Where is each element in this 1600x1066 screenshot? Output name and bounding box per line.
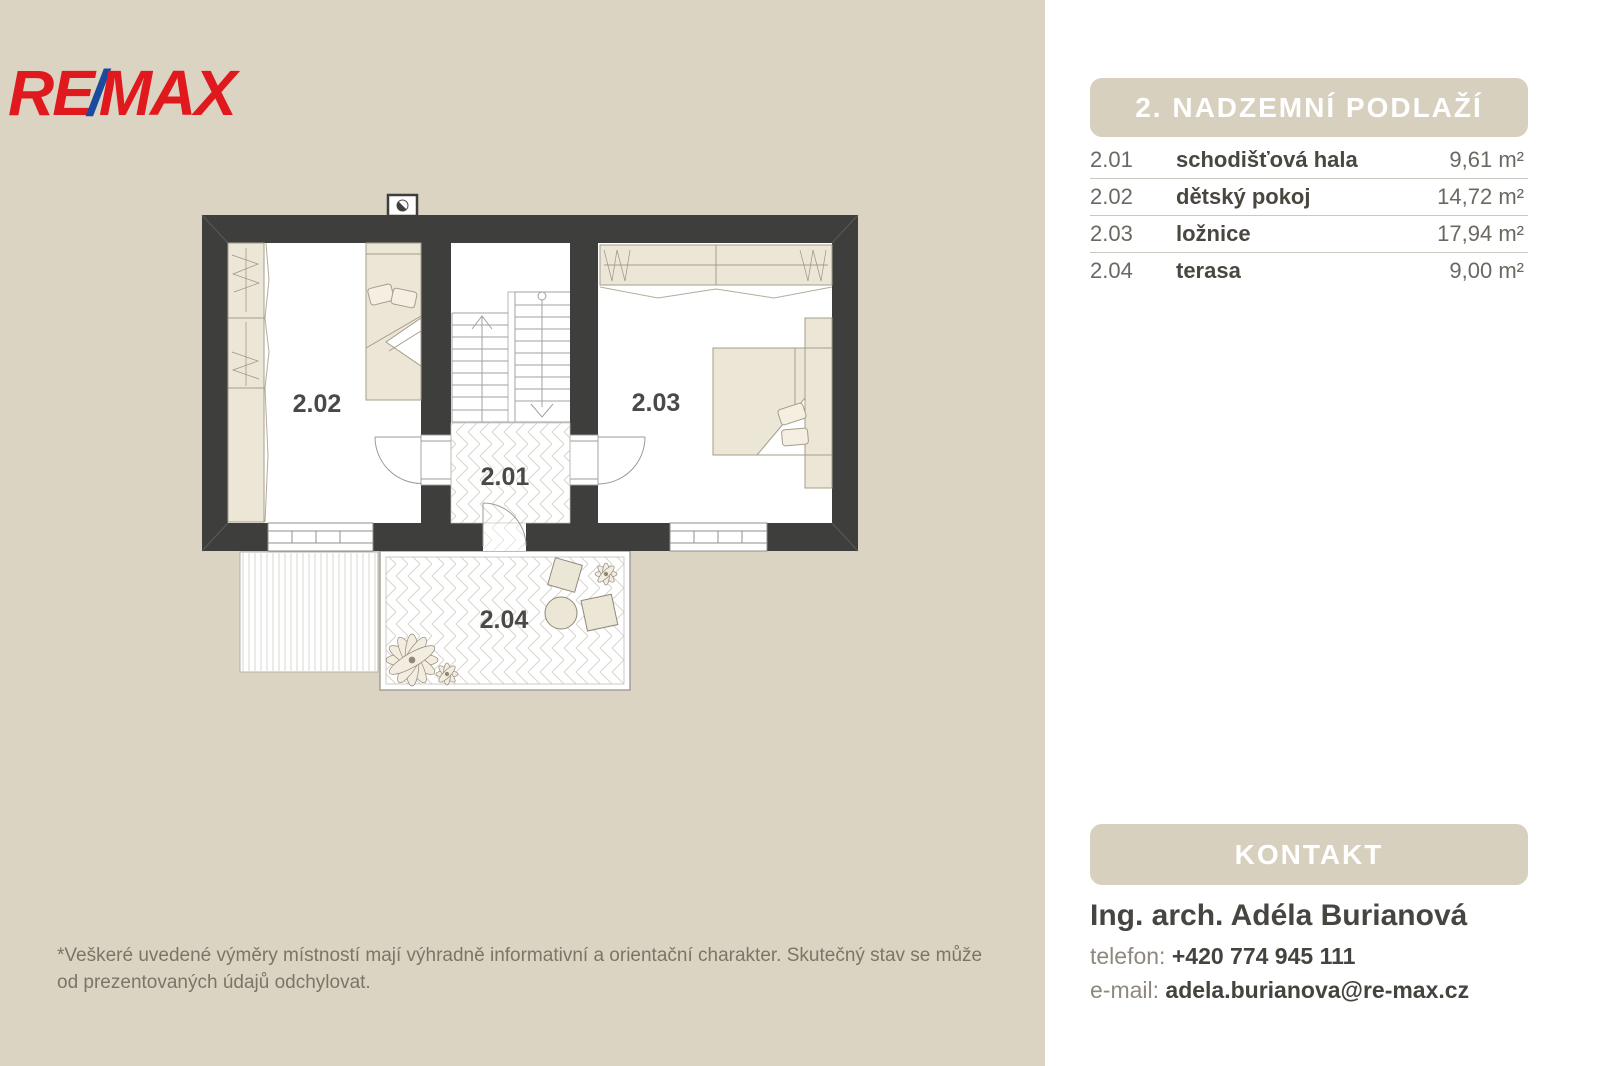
table-row: 2.01 schodišťová hala 9,61 m² — [1090, 142, 1528, 179]
room-name: ložnice — [1176, 221, 1437, 247]
plant-icon — [595, 563, 617, 585]
room-name: schodišťová hala — [1176, 147, 1449, 173]
room-code: 2.01 — [1090, 147, 1176, 173]
table-icon — [545, 597, 577, 629]
floor-title: 2. NADZEMNÍ PODLAŽÍ — [1090, 78, 1528, 137]
table-row: 2.03 ložnice 17,94 m² — [1090, 216, 1528, 253]
floorplan-drawing: 2.02 2.01 2.03 2.04 — [0, 0, 1045, 1066]
room-code: 2.04 — [1090, 258, 1176, 284]
chair-icon — [581, 594, 618, 631]
room-area: 17,94 m² — [1437, 221, 1528, 247]
plan-canvas: RE/MAX — [0, 0, 1045, 1066]
room-area: 9,61 m² — [1449, 147, 1528, 173]
kontakt-title: KONTAKT — [1090, 824, 1528, 885]
email-label: e-mail: — [1090, 977, 1159, 1003]
single-bed — [366, 243, 421, 400]
room-label-2-02: 2.02 — [293, 390, 342, 418]
plant-icon — [436, 663, 458, 685]
disclaimer-text: *Veškeré uvedené výměry místností mají v… — [57, 942, 982, 996]
window — [268, 523, 373, 551]
agent-phone-row: telefon: +420 774 945 111 — [1090, 943, 1355, 970]
page: RE/MAX — [0, 0, 1600, 1066]
room-label-2-01: 2.01 — [481, 463, 530, 491]
terrace-door-gap — [483, 523, 526, 551]
room-code: 2.03 — [1090, 221, 1176, 247]
table-row: 2.04 terasa 9,00 m² — [1090, 253, 1528, 289]
table-row: 2.02 dětský pokoj 14,72 m² — [1090, 179, 1528, 216]
roof-ledge — [240, 552, 378, 672]
disclaimer-line2: od prezentovaných údajů odchylovat. — [57, 969, 982, 996]
room-area: 9,00 m² — [1449, 258, 1528, 284]
agent-email-row: e-mail: adela.burianova@re-max.cz — [1090, 977, 1469, 1004]
chimney-icon — [388, 195, 417, 216]
room-label-2-03: 2.03 — [632, 389, 681, 417]
room-label-2-04: 2.04 — [480, 606, 529, 634]
phone-label: telefon: — [1090, 943, 1165, 969]
window — [670, 523, 767, 551]
room-area: 14,72 m² — [1437, 184, 1528, 210]
wardrobe — [228, 243, 269, 522]
room-table: 2.01 schodišťová hala 9,61 m² 2.02 dětsk… — [1090, 142, 1528, 289]
agent-name: Ing. arch. Adéla Burianová — [1090, 899, 1467, 933]
info-panel: 2. NADZEMNÍ PODLAŽÍ 2.01 schodišťová hal… — [1045, 0, 1600, 1066]
email-address: adela.burianova@re-max.cz — [1165, 977, 1469, 1003]
phone-number: +420 774 945 111 — [1172, 943, 1356, 969]
room-name: terasa — [1176, 258, 1449, 284]
disclaimer-line1: *Veškeré uvedené výměry místností mají v… — [57, 942, 982, 969]
room-name: dětský pokoj — [1176, 184, 1437, 210]
room-code: 2.02 — [1090, 184, 1176, 210]
